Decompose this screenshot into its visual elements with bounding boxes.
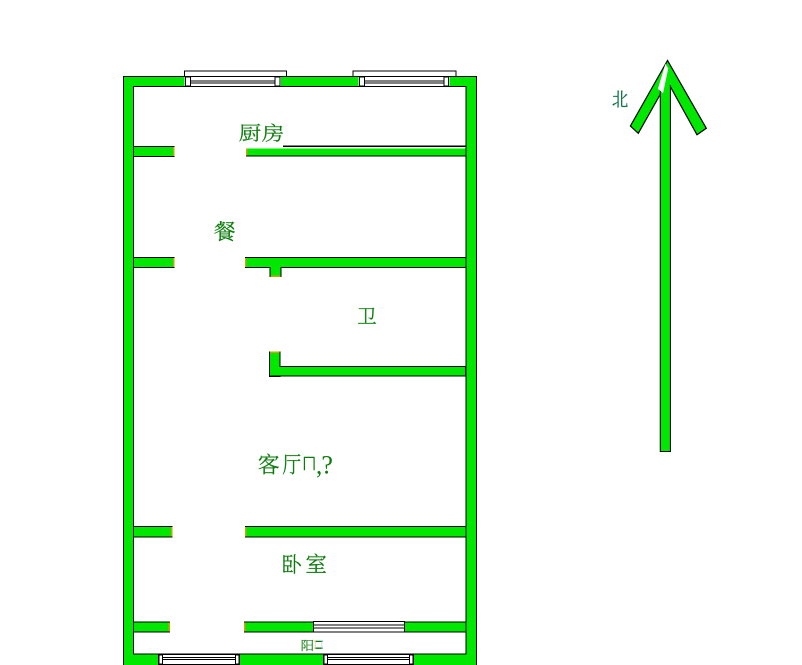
svg-text:?: ? (321, 450, 333, 479)
